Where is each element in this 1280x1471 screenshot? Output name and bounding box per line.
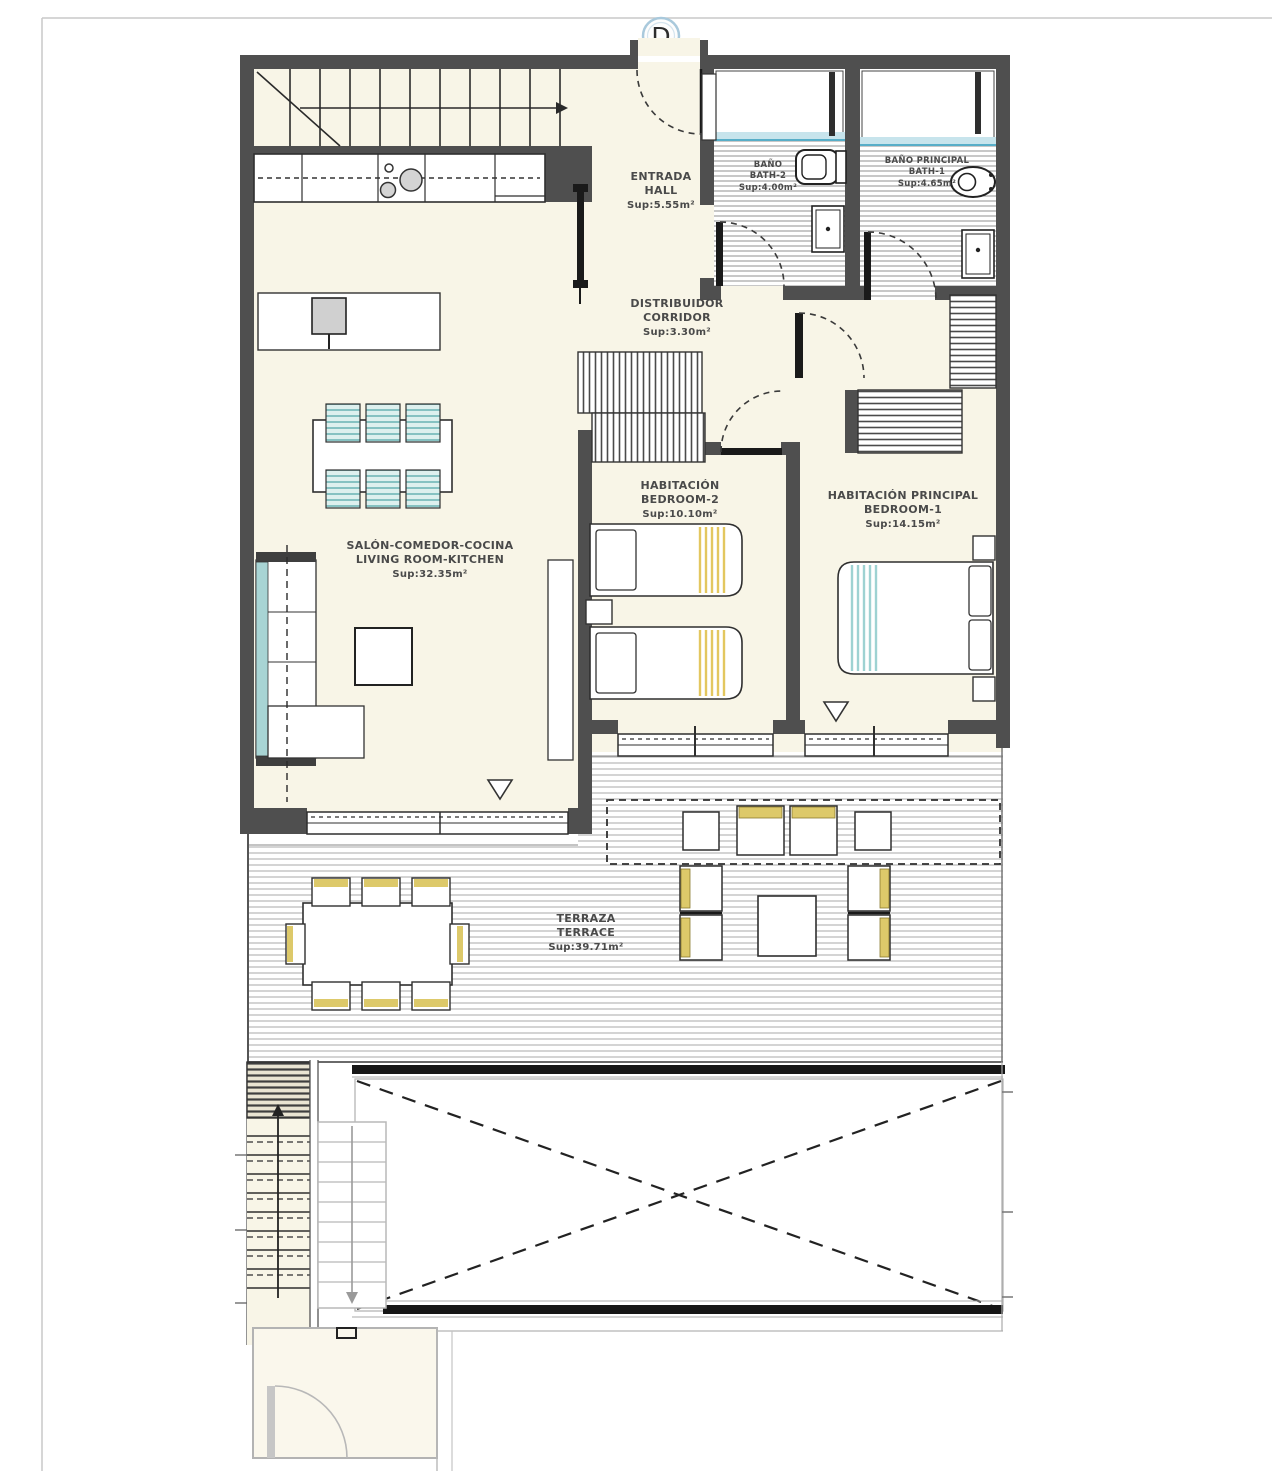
washbasin — [962, 230, 994, 278]
wardrobe-corridor-1 — [578, 352, 702, 413]
bath1-door-leaf — [864, 232, 871, 300]
hall-label: ENTRADA — [631, 170, 692, 183]
coffee-table — [355, 628, 412, 685]
kitchen-counter — [254, 154, 545, 202]
ghost-door-leaf — [267, 1386, 275, 1458]
svg-text:HALL: HALL — [645, 184, 678, 197]
svg-text:Sup:14.15m²: Sup:14.15m² — [865, 519, 940, 530]
bath2-door-leaf — [716, 222, 723, 286]
sofa-chaise — [268, 706, 364, 758]
sink-small-bowl — [385, 164, 393, 172]
island-sink — [312, 298, 346, 334]
pillow — [969, 620, 991, 670]
cooktop — [400, 169, 422, 191]
pillow — [969, 566, 991, 616]
bath2-label: BAÑO — [754, 159, 783, 170]
sink-bowl — [381, 183, 396, 198]
svg-text:LIVING ROOM-KITCHEN: LIVING ROOM-KITCHEN — [356, 553, 504, 566]
shower-tray — [862, 71, 994, 143]
wardrobe-corridor-2 — [592, 413, 705, 462]
pillow — [596, 530, 636, 590]
bath1-label: BAÑO PRINCIPAL — [885, 155, 970, 166]
svg-text:BATH-2: BATH-2 — [750, 171, 787, 181]
wardrobe-bedroom1 — [858, 390, 962, 453]
bedroom1-door-leaf — [795, 313, 803, 378]
svg-text:BATH-1: BATH-1 — [909, 167, 946, 177]
svg-text:CORRIDOR: CORRIDOR — [643, 311, 711, 324]
pillow — [596, 633, 636, 693]
bedroom2-door-leaf — [721, 448, 782, 455]
shower-tray — [716, 71, 843, 138]
floor-plan-drawing: D — [0, 0, 1280, 1471]
svg-text:Sup:10.10m²: Sup:10.10m² — [642, 509, 717, 520]
hall-closet — [702, 74, 716, 140]
terrace-label: TERRAZA — [556, 912, 615, 925]
floor-plan-page: D — [0, 0, 1280, 1471]
nightstand — [973, 677, 995, 701]
corridor-label: DISTRIBUIDOR — [630, 297, 723, 310]
svg-text:Sup:39.71m²: Sup:39.71m² — [548, 942, 623, 953]
tv-unit — [548, 560, 573, 760]
side-table — [855, 812, 891, 850]
nightstand — [973, 536, 995, 560]
bedroom2-label: HABITACIÓN — [640, 479, 719, 492]
shower-glass — [975, 72, 981, 134]
svg-text:Sup:32.35m²: Sup:32.35m² — [392, 569, 467, 580]
ghost-staircase — [318, 1122, 386, 1308]
svg-text:TERRACE: TERRACE — [557, 926, 615, 939]
svg-text:BEDROOM-1: BEDROOM-1 — [864, 503, 942, 516]
bedroom1-label: HABITACIÓN PRINCIPAL — [828, 489, 978, 502]
svg-text:Sup:4.65m²: Sup:4.65m² — [898, 179, 956, 189]
ghost-room — [253, 1328, 452, 1471]
outdoor-dining-table — [303, 903, 452, 985]
svg-text:Sup:3.30m²: Sup:3.30m² — [643, 327, 711, 338]
terrace-coffee-table — [758, 896, 816, 956]
svg-text:Sup:5.55m²: Sup:5.55m² — [627, 200, 695, 211]
shower-glass — [829, 72, 835, 136]
side-table — [683, 812, 719, 850]
nightstand — [586, 600, 612, 624]
svg-text:Sup:4.00m²: Sup:4.00m² — [739, 183, 797, 193]
svg-text:BEDROOM-2: BEDROOM-2 — [641, 493, 719, 506]
wardrobe-right — [950, 295, 996, 388]
living-label: SALÓN-COMEDOR-COCINA — [347, 539, 514, 552]
kitchen-island — [258, 293, 440, 350]
